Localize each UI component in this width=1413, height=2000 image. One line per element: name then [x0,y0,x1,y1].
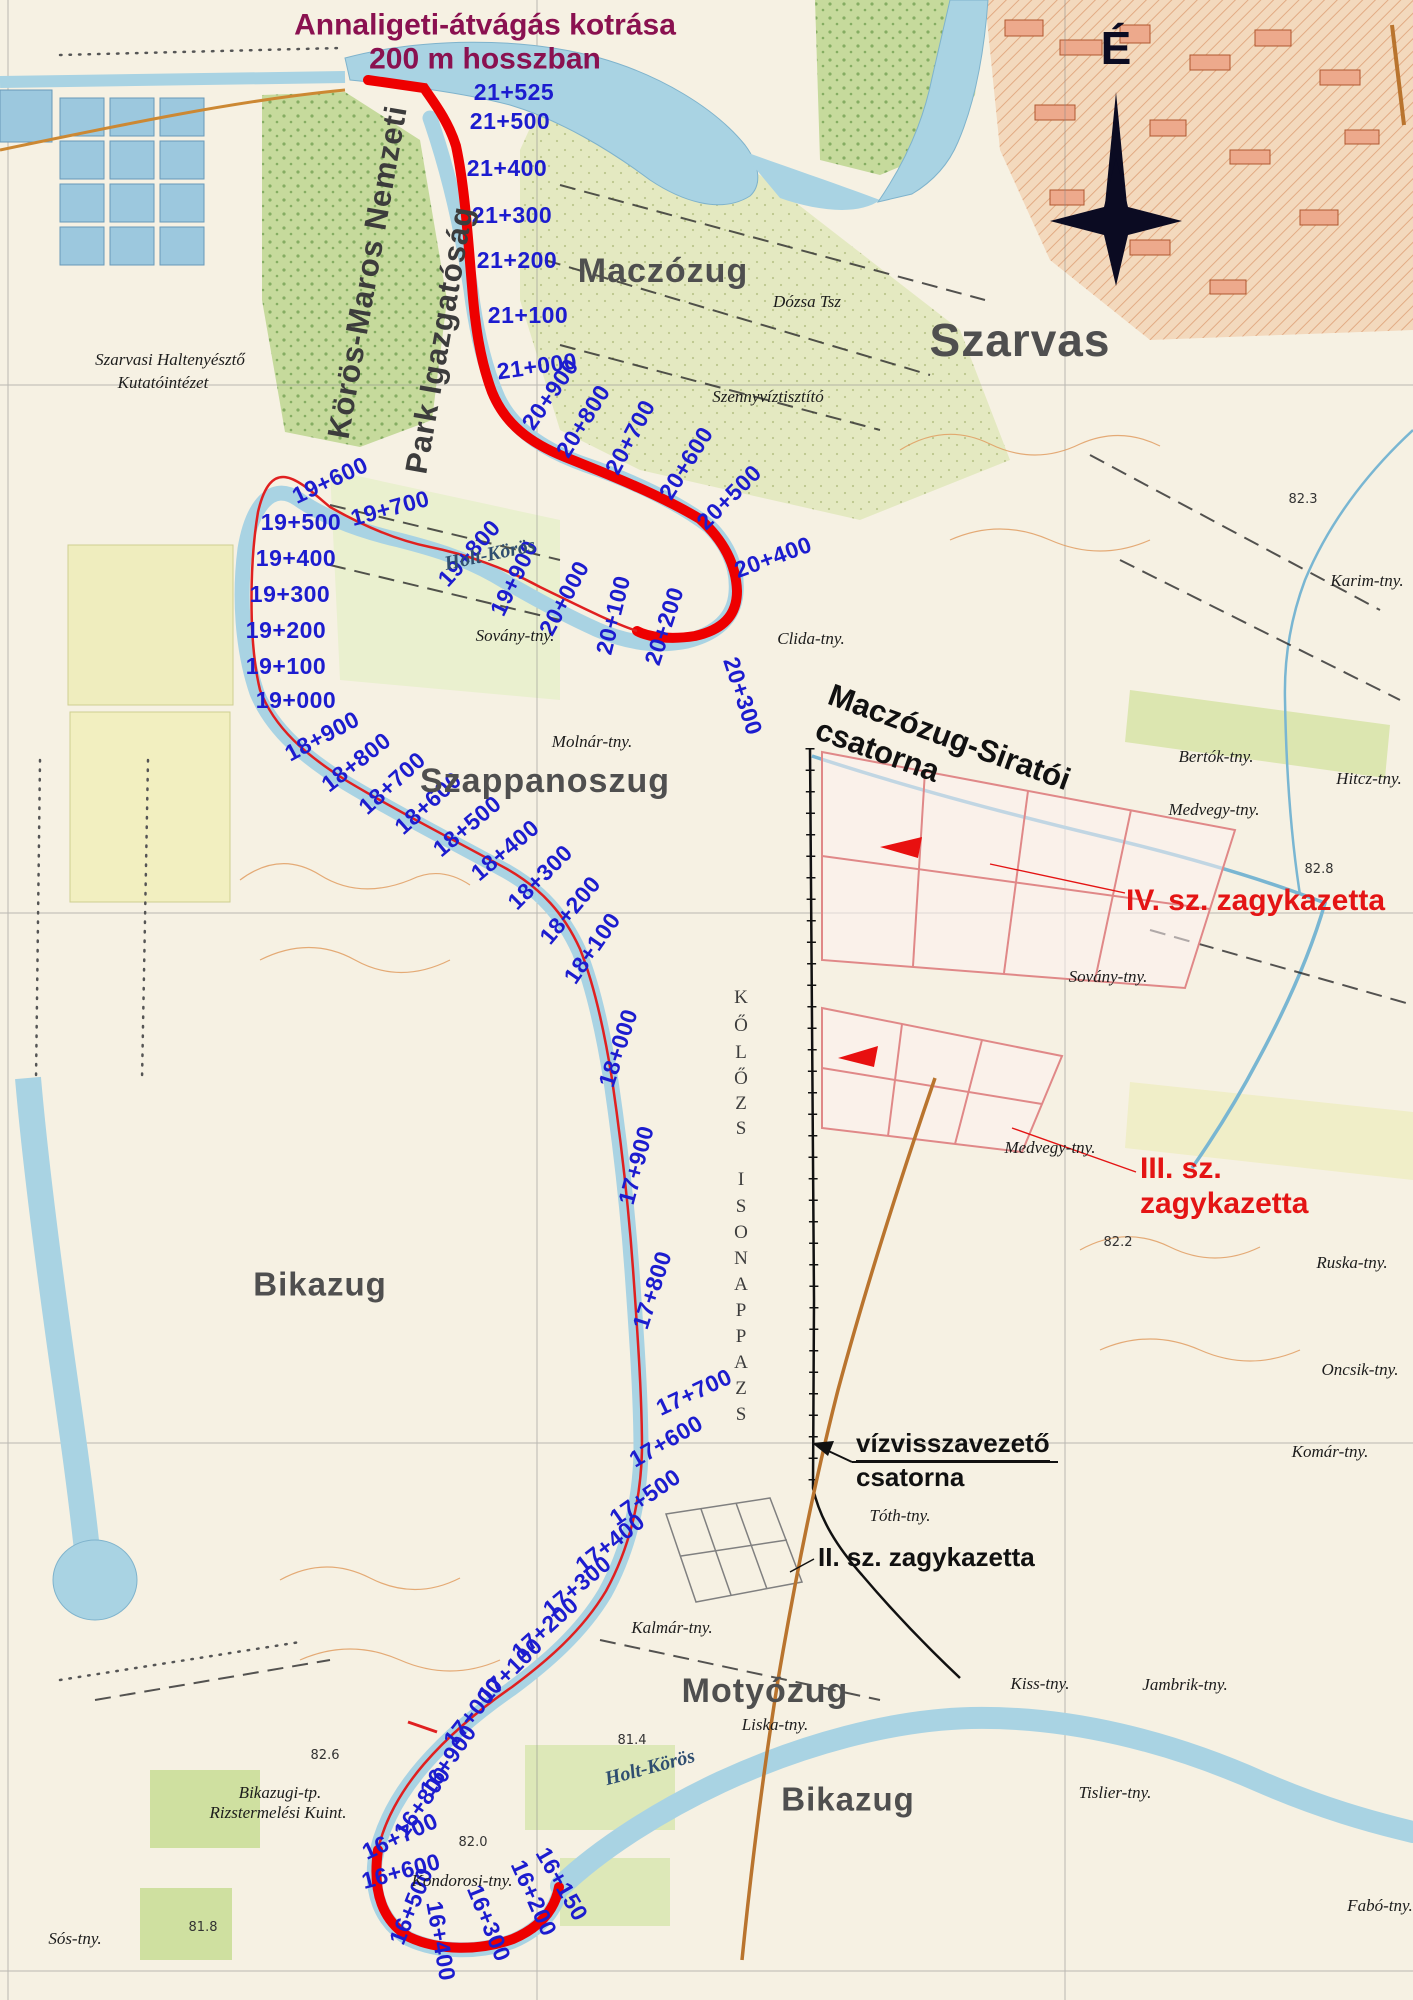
spread-letter: A [734,1274,748,1296]
farmstead-label: Dózsa Tsz [773,293,841,311]
farmstead-label: Oncsik-tny. [1322,1361,1399,1379]
farmstead-label: Medvegy-tny. [1168,801,1259,819]
spread-letter: Ő [734,1068,748,1090]
channel-label-line: vízvisszavezető [856,1428,1050,1462]
area-label: Bikazug [781,1783,915,1818]
spread-letter: Ő [734,1015,748,1037]
farmstead-label: Sós-tny. [48,1930,101,1948]
field-left-2 [70,712,230,902]
map-canvas: Annaligeti-átvágás kotrása 200 m hosszba… [0,0,1413,2000]
area-label: Szarvas [930,316,1111,364]
sludge-cassette-label-line: IV. sz. zagykazetta [1126,884,1385,919]
farmstead-label: Jambrik-tny. [1142,1676,1227,1694]
farmstead-label: Kondorosi-tny. [412,1872,513,1890]
elevation-label: 82.3 [1289,493,1318,507]
chainage-label: 21+525 [474,80,554,104]
elevation-label: 82.2 [1104,1236,1133,1250]
field-left-1 [68,545,233,705]
chainage-label: 21+200 [477,248,557,272]
spread-letter: A [734,1352,748,1374]
farmstead-label: Ruska-tny. [1316,1254,1387,1272]
spread-letter: N [734,1248,748,1270]
farmstead-label: Karim-tny. [1330,572,1403,590]
chainage-label: 21+500 [470,109,550,133]
spread-letter: S [736,1404,747,1426]
chainage-label: 21+100 [488,303,568,327]
sludge-cassette-label: III. sz.zagykazetta [1140,1152,1308,1221]
farmstead-label: Kutatóintézet [118,374,209,392]
area-label: Motyózug [682,1674,849,1710]
spread-letter: O [734,1222,748,1244]
chainage-label: 19+300 [250,582,330,606]
channel-label-line: II. sz. zagykazetta [818,1542,1035,1573]
spread-letter: S [736,1118,747,1140]
channel-label: II. sz. zagykazetta [818,1542,1035,1573]
area-label: Maczózug [578,254,748,290]
chainage-label: 19+400 [256,546,336,570]
channel-label-line: csatorna [856,1462,1050,1493]
spread-letter: S [736,1196,747,1218]
sludge-cassette-label: IV. sz. zagykazetta [1126,884,1385,919]
chainage-label: 21+400 [467,156,547,180]
farmstead-label: Szarvasi Haltenyésztő [95,351,245,369]
annotation-title-line2: 200 m hosszban [369,43,601,75]
chainage-label: 19+500 [261,510,341,534]
farmstead-label: Molnár-tny. [552,733,632,751]
area-label: Szappanoszug [420,764,670,800]
spread-letter: P [736,1326,747,1348]
area-label: Bikazug [253,1268,387,1303]
farmstead-label: Tóth-tny. [870,1507,931,1525]
spread-letter: Z [735,1093,747,1115]
farmstead-label: Komár-tny. [1292,1443,1369,1461]
chainage-label: 19+200 [246,618,326,642]
chainage-label: 21+300 [472,203,552,227]
farmstead-label: Bertók-tny. [1178,748,1253,766]
spread-letter: L [735,1042,747,1064]
farmstead-label: Kiss-tny. [1010,1675,1069,1693]
farmstead-label: Liska-tny. [742,1716,809,1734]
spread-letter: Z [735,1378,747,1400]
north-label: É [1101,24,1132,72]
sludge-cassette-label-line: zagykazetta [1140,1187,1308,1222]
sludge-cassette-label-line: III. sz. [1140,1152,1308,1187]
farmstead-label: Medvegy-tny. [1004,1139,1095,1157]
elevation-label: 81.4 [618,1734,647,1748]
farmstead-label: Sovány-tny. [476,627,555,645]
spread-letter: I [738,1169,744,1191]
farmstead-label: Clida-tny. [777,630,845,648]
farmstead-label: Szennyvíztisztító [712,388,823,406]
spread-letter: K [734,987,748,1009]
farmstead-label: Bikazugi-tp. [239,1784,322,1802]
elevation-label: 82.6 [311,1749,340,1763]
farmstead-label: Kalmár-tny. [631,1619,712,1637]
channel-label: vízvisszavezetőcsatorna [856,1428,1050,1493]
elevation-label: 81.8 [189,1921,218,1935]
chainage-label: 19+100 [246,654,326,678]
elevation-label: 82.8 [1305,863,1334,877]
farmstead-label: Rizstermelési Kuint. [210,1804,347,1822]
elevation-label: 82.0 [459,1836,488,1850]
farmstead-label: Hitcz-tny. [1336,770,1402,788]
chainage-label: 19+000 [256,688,336,712]
farmstead-label: Fabó-tny. [1347,1897,1413,1915]
farmstead-label: Sovány-tny. [1069,968,1148,986]
spread-letter: P [736,1300,747,1322]
farmstead-label: Tislier-tny. [1079,1784,1152,1802]
field-bz-2 [140,1888,232,1960]
annotation-title-line1: Annaligeti-átvágás kotrása [294,9,676,41]
